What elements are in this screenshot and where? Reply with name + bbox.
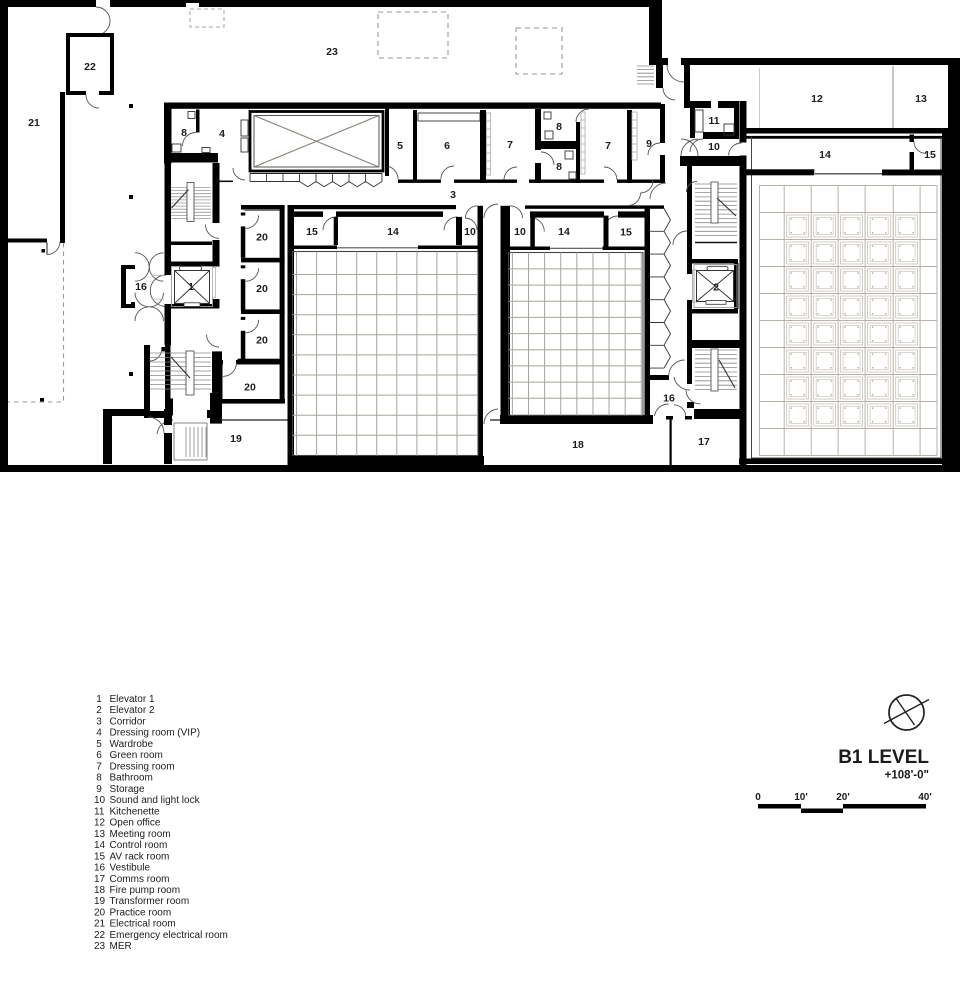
svg-text:MER: MER — [110, 941, 132, 952]
svg-text:Meeting room: Meeting room — [110, 829, 171, 840]
svg-text:Elevator 2: Elevator 2 — [110, 705, 155, 716]
svg-text:9: 9 — [646, 138, 652, 150]
svg-text:6: 6 — [96, 750, 102, 761]
svg-text:Green room: Green room — [110, 750, 163, 761]
svg-text:20: 20 — [256, 334, 268, 346]
svg-text:18: 18 — [572, 439, 584, 451]
svg-text:40': 40' — [918, 792, 932, 803]
svg-text:22: 22 — [84, 61, 96, 73]
svg-text:+108'-0": +108'-0" — [885, 770, 929, 782]
svg-text:3: 3 — [450, 189, 456, 201]
svg-text:6: 6 — [444, 140, 450, 152]
svg-text:17: 17 — [94, 874, 106, 885]
svg-text:20: 20 — [256, 283, 268, 295]
svg-text:13: 13 — [915, 93, 927, 105]
svg-text:B1 LEVEL: B1 LEVEL — [838, 747, 929, 768]
svg-text:19: 19 — [94, 896, 106, 907]
svg-text:14: 14 — [819, 149, 831, 161]
svg-text:8: 8 — [556, 161, 562, 173]
svg-text:17: 17 — [698, 436, 710, 448]
svg-text:18: 18 — [94, 885, 106, 896]
svg-text:Corridor: Corridor — [110, 717, 147, 728]
svg-text:Bathroom: Bathroom — [110, 773, 153, 784]
svg-text:Transformer room: Transformer room — [110, 896, 190, 907]
svg-text:20: 20 — [244, 381, 256, 393]
svg-text:23: 23 — [94, 941, 106, 952]
svg-text:Storage: Storage — [110, 784, 145, 795]
svg-text:Electrical room: Electrical room — [110, 919, 176, 930]
svg-text:Elevator 1: Elevator 1 — [110, 694, 155, 705]
svg-text:14: 14 — [558, 226, 570, 238]
svg-text:Wardrobe: Wardrobe — [110, 739, 154, 750]
svg-text:10: 10 — [464, 226, 476, 238]
svg-text:8: 8 — [96, 773, 102, 784]
svg-text:Vestibule: Vestibule — [110, 863, 151, 874]
svg-text:AV rack room: AV rack room — [110, 851, 170, 862]
svg-text:Kitchenette: Kitchenette — [110, 806, 160, 817]
svg-text:7: 7 — [96, 761, 102, 772]
svg-text:Comms room: Comms room — [110, 874, 170, 885]
svg-text:Dressing room: Dressing room — [110, 761, 175, 772]
svg-text:7: 7 — [507, 139, 513, 151]
svg-text:3: 3 — [96, 717, 102, 728]
svg-text:12: 12 — [94, 818, 106, 829]
svg-text:Control room: Control room — [110, 840, 168, 851]
svg-text:Practice room: Practice room — [110, 908, 172, 919]
svg-text:0: 0 — [755, 792, 761, 803]
svg-text:Fire pump room: Fire pump room — [110, 885, 181, 896]
svg-text:4: 4 — [96, 728, 102, 739]
svg-text:21: 21 — [28, 117, 40, 129]
svg-text:10': 10' — [794, 792, 808, 803]
svg-text:16: 16 — [94, 863, 106, 874]
svg-text:10: 10 — [514, 226, 526, 238]
svg-text:20: 20 — [256, 231, 268, 243]
svg-text:Emergency electrical room: Emergency electrical room — [110, 930, 228, 941]
svg-text:10: 10 — [708, 141, 720, 153]
svg-text:11: 11 — [94, 806, 105, 817]
svg-text:14: 14 — [94, 840, 106, 851]
svg-text:10: 10 — [94, 795, 106, 806]
svg-text:2: 2 — [96, 705, 102, 716]
svg-text:23: 23 — [326, 46, 338, 58]
svg-text:16: 16 — [135, 281, 147, 293]
svg-text:15: 15 — [94, 851, 106, 862]
svg-text:7: 7 — [605, 140, 611, 152]
svg-text:9: 9 — [96, 784, 102, 795]
svg-text:20': 20' — [836, 792, 850, 803]
svg-text:22: 22 — [94, 930, 106, 941]
svg-text:13: 13 — [94, 829, 106, 840]
svg-text:5: 5 — [96, 739, 102, 750]
svg-text:14: 14 — [387, 226, 399, 238]
svg-text:8: 8 — [556, 121, 562, 133]
svg-text:Sound and light lock: Sound and light lock — [110, 795, 201, 806]
svg-text:19: 19 — [230, 433, 242, 445]
svg-text:16: 16 — [663, 393, 675, 405]
svg-text:5: 5 — [397, 140, 403, 152]
svg-text:1: 1 — [96, 694, 102, 705]
svg-text:11: 11 — [708, 115, 719, 127]
svg-text:20: 20 — [94, 908, 106, 919]
svg-text:1: 1 — [188, 281, 194, 293]
svg-text:15: 15 — [924, 149, 936, 161]
svg-text:15: 15 — [620, 227, 632, 239]
svg-text:Dressing room (VIP): Dressing room (VIP) — [110, 728, 201, 739]
svg-text:4: 4 — [219, 128, 225, 140]
svg-text:12: 12 — [811, 93, 823, 105]
svg-text:21: 21 — [94, 919, 106, 930]
svg-text:15: 15 — [306, 226, 318, 238]
svg-text:Open office: Open office — [110, 818, 161, 829]
